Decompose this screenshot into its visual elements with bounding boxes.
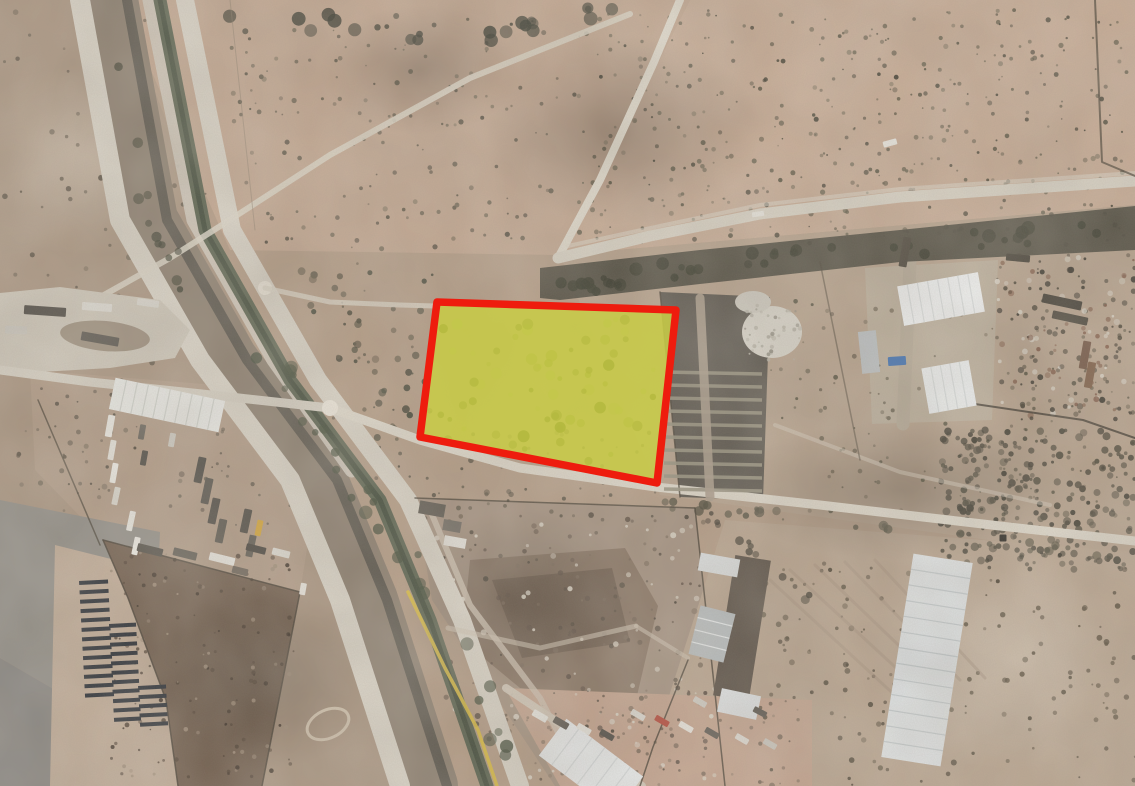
scrub-dot — [535, 406, 540, 411]
scrub-dot — [522, 319, 533, 330]
scrub-dot — [572, 369, 579, 376]
scrub-dot — [512, 334, 518, 340]
scrub-dot — [439, 324, 448, 333]
scrub-dot — [552, 412, 560, 420]
scrub-dot — [581, 389, 586, 394]
satellite-map-view — [0, 0, 1135, 786]
scrub-dot — [462, 427, 467, 432]
scrub-dot — [603, 319, 612, 328]
scrub-dot — [610, 349, 618, 357]
scrub-dot — [469, 397, 477, 405]
scrub-dot — [641, 388, 647, 394]
scrub-dot — [487, 362, 491, 366]
scrub-dot — [492, 431, 500, 439]
satellite-imagery — [0, 0, 1135, 786]
scrub-dot — [470, 351, 475, 356]
scrub-dot — [594, 402, 606, 414]
scrub-dot — [586, 367, 593, 374]
scrub-dot — [438, 412, 445, 419]
scrub-dot — [449, 348, 456, 355]
scrub-dot — [569, 348, 574, 353]
scrub-dot — [608, 452, 613, 457]
scrub-dot — [555, 422, 566, 433]
scrub-dot — [623, 336, 629, 342]
scrub-dot — [584, 457, 592, 465]
scrub-dot — [621, 327, 629, 335]
scrub-dot — [556, 438, 565, 447]
scrub-dot — [522, 446, 528, 452]
scrub-dot — [533, 364, 541, 372]
scrub-dot — [603, 359, 614, 370]
scrub-dot — [577, 419, 585, 427]
scrub-dot — [518, 430, 530, 442]
scrub-dot — [620, 315, 630, 325]
scrub-dot — [544, 359, 552, 367]
scrub-dot — [548, 389, 558, 399]
scrub-dot — [544, 416, 550, 422]
scrub-dot — [581, 336, 590, 345]
scrub-dot — [526, 353, 537, 364]
scrub-dot — [623, 417, 633, 427]
scrub-dot — [459, 401, 467, 409]
scrub-dot — [565, 415, 575, 425]
scrub-dot — [529, 388, 534, 393]
scrub-dot — [557, 376, 562, 381]
scrub-dot — [651, 368, 655, 372]
scrub-dot — [509, 441, 517, 449]
scrub-dot — [650, 394, 656, 400]
scrub-dot — [608, 403, 620, 415]
scrub-dot — [546, 371, 556, 381]
scrub-dot — [613, 317, 618, 322]
scrub-dot — [491, 368, 502, 379]
scrub-dot — [515, 324, 522, 331]
scrub-dot — [508, 392, 512, 396]
scrub-dot — [447, 417, 452, 422]
scrub-dot — [470, 378, 479, 387]
scrub-dot — [493, 348, 500, 355]
scrub-dot — [603, 381, 608, 386]
scrub-dot — [600, 335, 610, 345]
scrub-dot — [452, 319, 463, 330]
